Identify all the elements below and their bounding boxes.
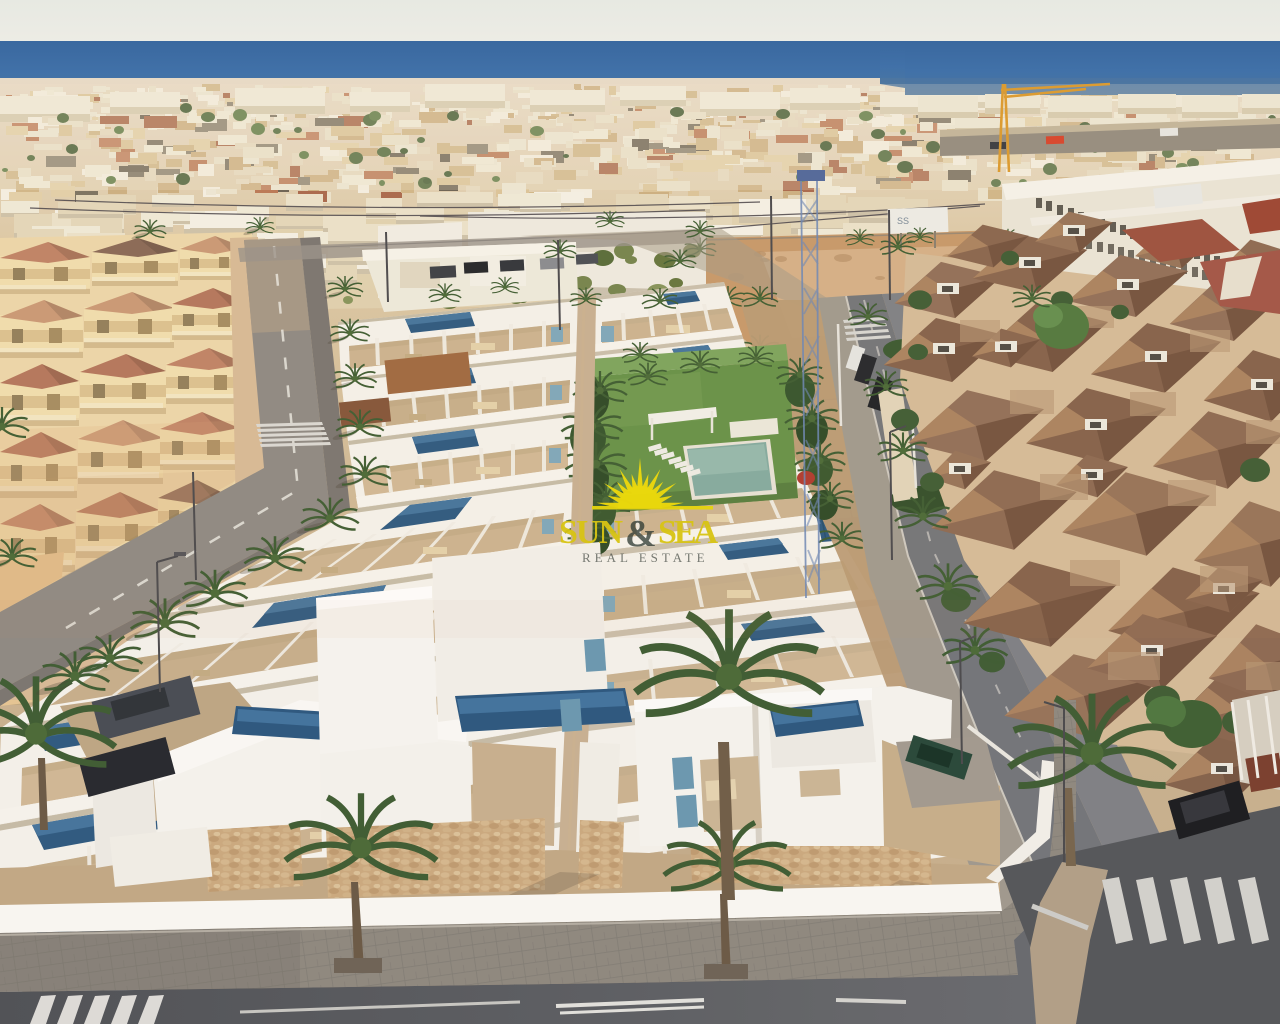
svg-text:&: & xyxy=(625,513,657,555)
svg-text:REAL ESTATE: REAL ESTATE xyxy=(582,550,709,565)
svg-text:SUN: SUN xyxy=(559,514,623,551)
svg-text:SEA: SEA xyxy=(658,514,718,551)
